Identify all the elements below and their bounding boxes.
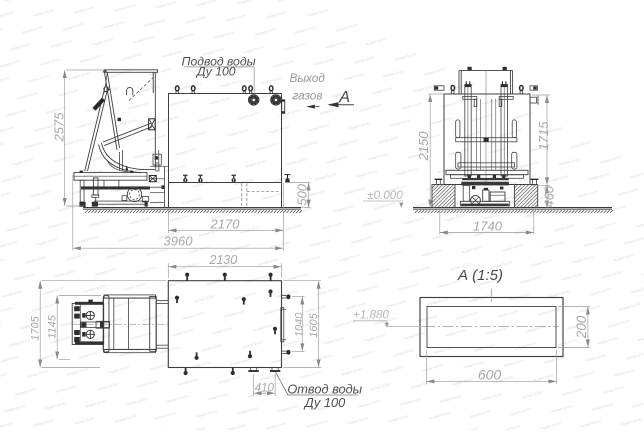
svg-text:газов: газов (292, 88, 322, 102)
svg-text:1705: 1705 (30, 315, 42, 340)
svg-text:460: 460 (542, 185, 557, 207)
svg-text:2130: 2130 (208, 253, 237, 267)
svg-text:±0.000: ±0.000 (367, 189, 403, 202)
svg-text:410: 410 (255, 382, 275, 394)
svg-text:1740: 1740 (473, 219, 503, 234)
svg-text:2150: 2150 (416, 131, 431, 162)
svg-text:+1.880: +1.880 (353, 309, 389, 322)
svg-text:200: 200 (574, 315, 589, 339)
svg-text:500: 500 (294, 183, 309, 205)
svg-text:Ду 100: Ду 100 (303, 395, 346, 410)
svg-text:А (1:5): А (1:5) (457, 267, 503, 284)
svg-text:1145: 1145 (47, 314, 59, 339)
svg-text:1605: 1605 (308, 312, 320, 337)
svg-text:Выход: Выход (289, 71, 325, 85)
svg-text:1715: 1715 (536, 121, 551, 151)
svg-text:2170: 2170 (210, 217, 241, 232)
svg-text:2575: 2575 (51, 112, 66, 143)
svg-text:А: А (338, 89, 350, 106)
svg-text:600: 600 (478, 366, 502, 382)
svg-text:1040: 1040 (294, 312, 306, 337)
svg-text:3960: 3960 (164, 234, 194, 249)
